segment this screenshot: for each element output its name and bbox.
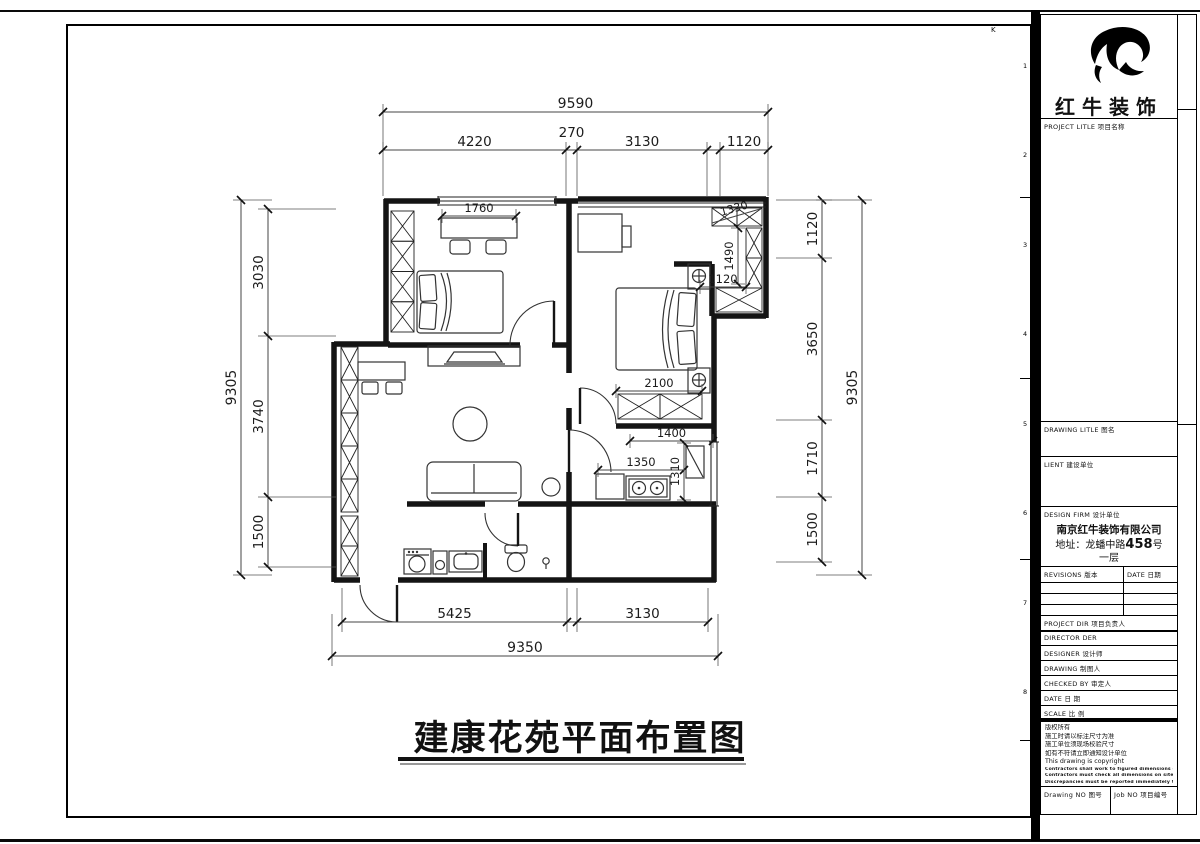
side-table-chairs (358, 362, 405, 394)
logo-cell: 红牛装饰 (1041, 15, 1177, 119)
door-bathroom (485, 513, 518, 546)
job-no-label: Job NO 项目编号 (1111, 787, 1177, 801)
drawing-no-label: Drawing NO 图号 (1041, 787, 1116, 801)
revision-empty-row (1041, 582, 1177, 593)
firm-address: 地址：龙蟠中路458号一层 (1041, 537, 1177, 565)
dim-label: 1490 (722, 241, 736, 270)
copyright-line: Contractors must check all dimensions on… (1045, 773, 1173, 780)
laundry-sink (433, 551, 447, 574)
dim-label: 3130 (625, 606, 659, 622)
checked-by-row: CHECKED BY 审定人 (1041, 675, 1177, 690)
dim-label: 5425 (437, 606, 471, 622)
director-row: DIRECTOR DER (1041, 630, 1177, 645)
dim-label: 3030 (251, 255, 267, 289)
dim-label: 4220 (457, 134, 491, 150)
bedroom2-desk (578, 214, 631, 252)
dim-label: 9350 (507, 640, 543, 656)
title-underline-2 (400, 763, 746, 765)
washing-machine (404, 549, 431, 574)
revision-empty-row (1041, 604, 1177, 615)
kitchen-cabinet (596, 474, 624, 499)
dim-label: 1120 (805, 212, 821, 246)
rednbull-logo-icon (1063, 19, 1163, 91)
design-firm-label: DESIGN FIRM 设计单位 (1041, 507, 1177, 521)
dim-label: 3130 (625, 134, 659, 150)
dim-label: 3650 (805, 322, 821, 356)
design-firm-row: DESIGN FIRM 设计单位 南京红牛装饰有限公司 地址：龙蟠中路458号一… (1041, 506, 1177, 566)
sofa-side-table (542, 478, 560, 496)
tv-cabinet (428, 346, 520, 366)
door-bedroom2 (580, 388, 616, 424)
brand-name: 红牛装饰 (1041, 91, 1177, 120)
scale-row: SCALE 比 例 (1041, 705, 1177, 720)
dim-label: 9305 (224, 370, 240, 406)
copyright-line: 施工单位须现场校验尺寸 (1045, 741, 1173, 750)
dim-label: 1710 (805, 441, 821, 475)
copyright-line: This drawing is copyright (1045, 758, 1173, 767)
toilet (505, 545, 527, 572)
door-kitchen (569, 430, 611, 472)
vanity-basin (449, 551, 482, 572)
bedroom2-bed (616, 288, 697, 370)
dim-label: 1350 (626, 455, 655, 469)
project-dir-row: PROJECT DIR 项目负责人 (1041, 615, 1177, 630)
fridge (686, 446, 704, 478)
dim-label: 1120 (708, 272, 737, 286)
window-kitchen (709, 442, 719, 506)
revisions-label: REVISIONS 版本 (1041, 567, 1129, 581)
stove (626, 476, 670, 500)
title-block-outer-column (1178, 14, 1197, 815)
drawing-title: 建康花苑平面布置图 (388, 710, 772, 761)
drafter-row: DRAWING 制图人 (1041, 660, 1177, 675)
round-dining-table (453, 407, 487, 441)
firm-address-number: 458 (1125, 537, 1152, 552)
drawing-sheet: { "drawing": { "title": "建康花苑平面布置图" }, "… (0, 0, 1200, 844)
dim-label: 9590 (558, 96, 594, 112)
client-row: LIENT 建设单位 (1041, 456, 1177, 506)
nightstand (688, 264, 710, 289)
door-bedroom1 (510, 301, 554, 345)
date-label: DATE 日期 (1124, 567, 1177, 581)
floor-drain (543, 558, 549, 569)
bedroom1-desk (441, 218, 517, 254)
revision-empty-row (1041, 593, 1177, 604)
copyright-line: 版权所有 (1045, 724, 1173, 733)
copyright-line: 施工时请以标注尺寸为准 (1045, 733, 1173, 742)
door-entry (360, 585, 397, 622)
walls (334, 197, 766, 582)
firm-address-prefix: 地址：龙蟠中路 (1055, 540, 1125, 551)
dim-label: 9305 (845, 370, 861, 406)
copyright-block: 版权所有 施工时请以标注尺寸为准 施工单位须现场校验尺寸 如有不符请立即通知设计… (1041, 720, 1177, 786)
dim-label: 3740 (251, 399, 267, 433)
dim-label: 2100 (644, 376, 673, 390)
designer-row: DESIGNER 设计师 (1041, 645, 1177, 660)
sofa (427, 462, 521, 501)
copyright-line: 如有不符请立即通知设计单位 (1045, 750, 1173, 759)
dim-label: 1500 (251, 515, 267, 549)
project-title-label: PROJECT LITLE 项目名称 (1041, 119, 1183, 133)
title-underline (398, 757, 744, 761)
title-block: 红牛装饰 PROJECT LITLE 项目名称 DRAWING LITLE 图名… (1040, 14, 1178, 815)
dim-label: 1310 (668, 457, 682, 486)
revisions-header-row: REVISIONS 版本 DATE 日期 (1041, 566, 1177, 582)
drawing-no-row: Drawing NO 图号 Job NO 项目编号 (1041, 786, 1177, 815)
dim-label: 270 (559, 125, 585, 141)
bedroom1-bed (417, 271, 503, 333)
nightstand (688, 368, 710, 393)
drawing-title-row: DRAWING LITLE 图名 (1041, 421, 1177, 456)
dim-label: 1500 (805, 512, 821, 546)
dim-label: 1400 (657, 426, 686, 440)
dim-label: 1120 (727, 134, 761, 150)
firm-name: 南京红牛装饰有限公司 (1041, 522, 1177, 537)
date-row: DATE 日 期 (1041, 690, 1177, 705)
window-bedroom1 (438, 196, 556, 206)
dim-label: 1760 (464, 201, 493, 215)
